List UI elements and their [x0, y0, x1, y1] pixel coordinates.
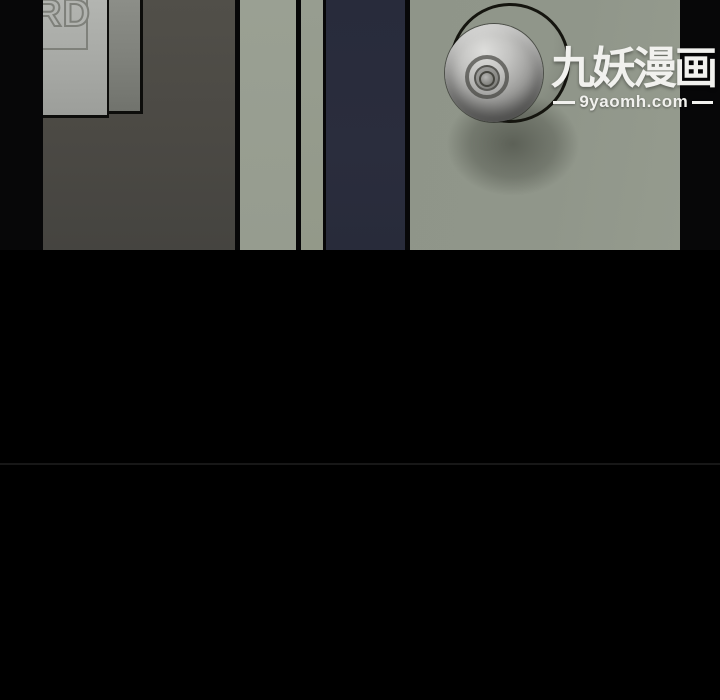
- comic-panel-door-scene: RD 九妖漫画 9yaomh.com: [0, 0, 720, 250]
- watermark-dash-left: [553, 101, 575, 104]
- door-jamb-inner: [301, 0, 323, 250]
- comic-panel-black-lower: [0, 465, 720, 700]
- door-sign-plate: RD: [43, 0, 109, 118]
- webtoon-reader-page[interactable]: RD 九妖漫画 9yaomh.com: [0, 0, 720, 700]
- watermark-site-row: 9yaomh.com: [553, 92, 713, 112]
- comic-panel-black-upper: [0, 250, 720, 463]
- door-side-face: [109, 0, 143, 114]
- watermark-title: 九妖漫画: [551, 46, 715, 92]
- watermark-dash-right: [692, 101, 713, 104]
- doorknob: [445, 24, 543, 122]
- doorknob-lock-core: [479, 71, 495, 87]
- sign-text: RD: [43, 0, 91, 33]
- door-edge-navy-stripe: [326, 0, 405, 250]
- door-jamb-outer: [240, 0, 296, 250]
- watermark-site-url: 9yaomh.com: [579, 92, 688, 112]
